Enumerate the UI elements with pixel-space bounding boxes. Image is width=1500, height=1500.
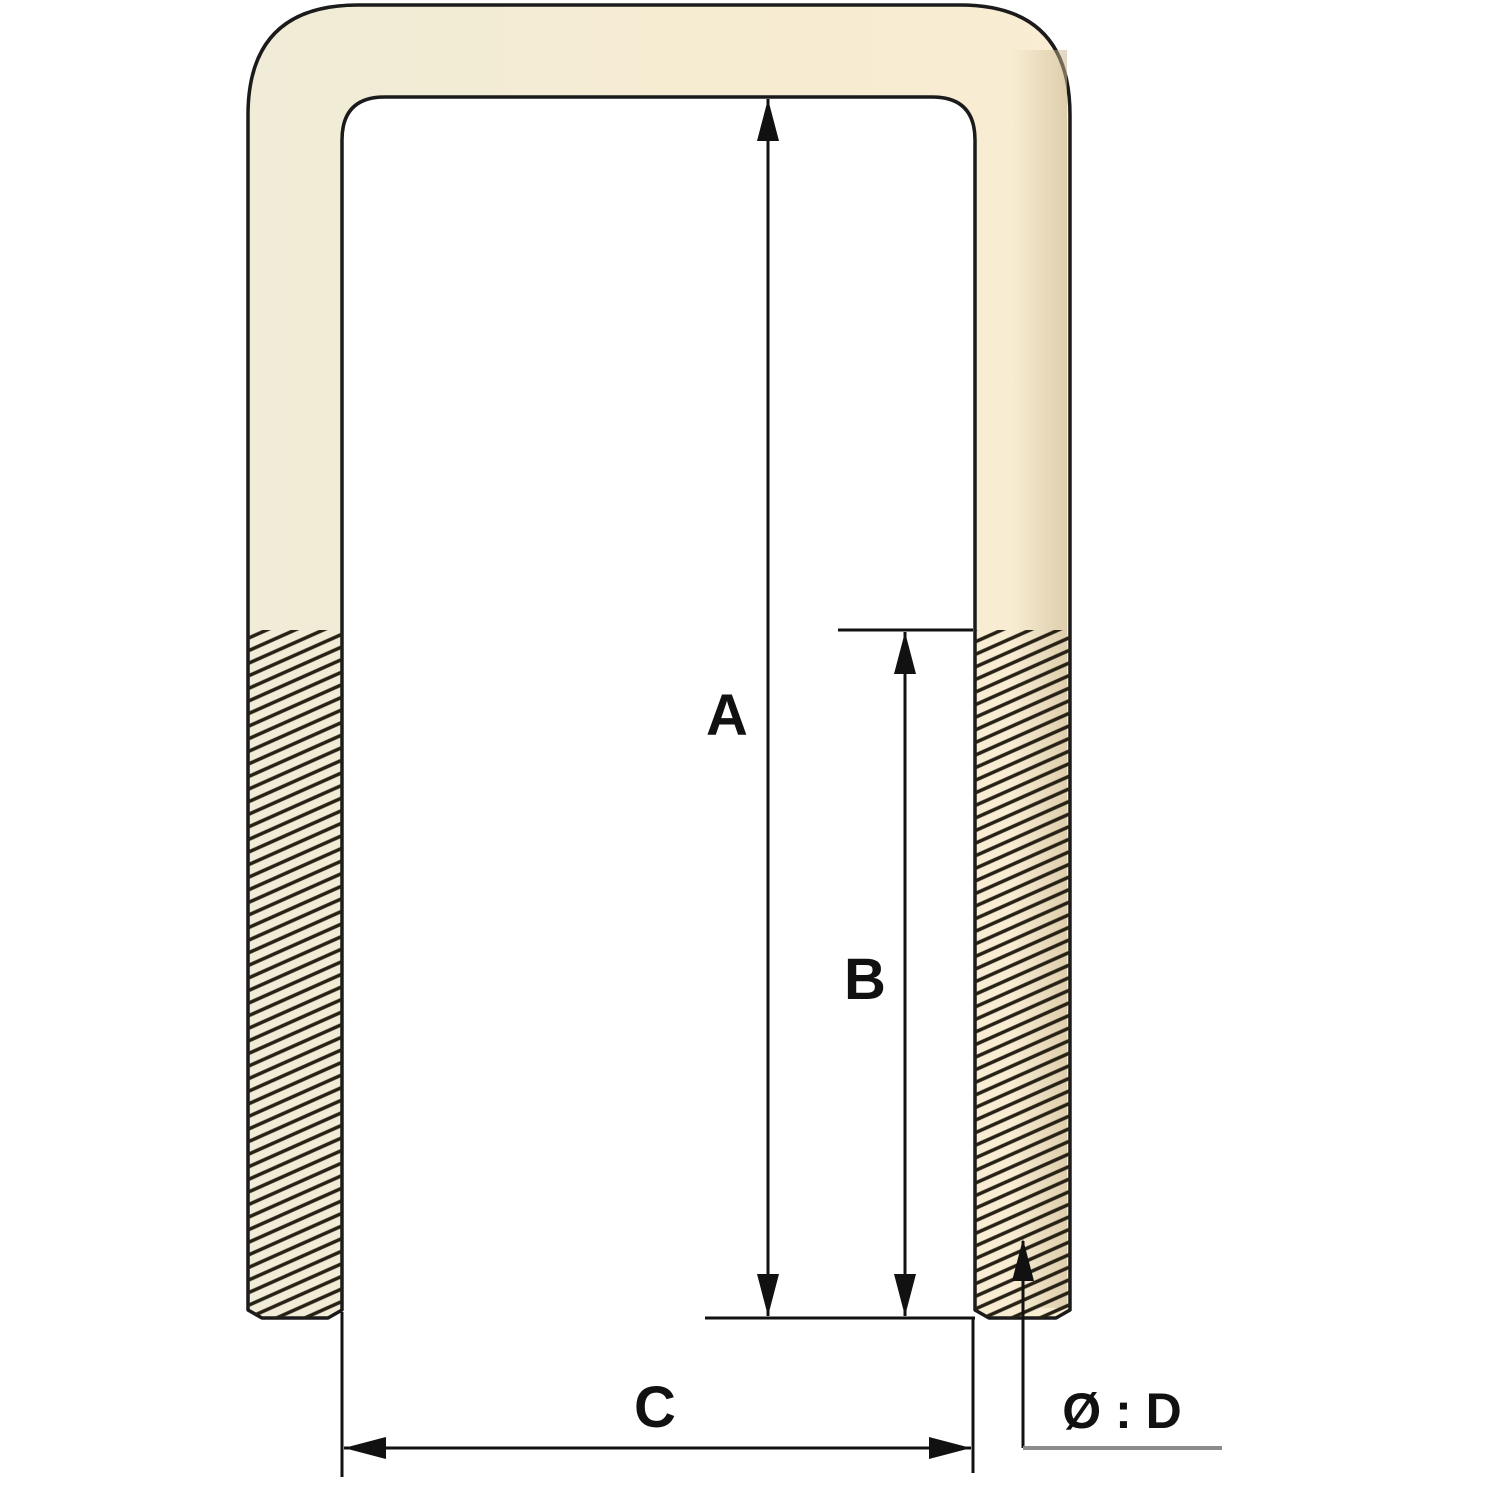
dim-a-arrow-up [757, 99, 779, 141]
dim-b-arrow-up [894, 632, 916, 674]
dim-b-label: B [844, 947, 886, 1012]
dim-b-arrow-down [894, 1274, 916, 1316]
dimension-lines [342, 99, 1023, 1477]
diameter-label: Ø : D [1062, 1383, 1181, 1439]
dimension-arrowheads [344, 99, 1034, 1459]
ubolt-body [248, 5, 1070, 1318]
dim-c-arrow-left [344, 1437, 386, 1459]
ubolt-body-group [248, 5, 1070, 1318]
dimension-labels: A B C Ø : D [634, 683, 1182, 1440]
dim-c-arrow-right [929, 1437, 971, 1459]
left-leg-thread-hatch [248, 630, 342, 1318]
ubolt-dimension-diagram: A B C Ø : D [0, 0, 1500, 1500]
right-leg-thread-hatch [975, 630, 1070, 1318]
dim-a-label: A [706, 683, 748, 748]
dim-c-label: C [634, 1375, 676, 1440]
ubolt-diagram-svg: A B C Ø : D [0, 0, 1500, 1500]
dim-a-arrow-down [757, 1274, 779, 1316]
